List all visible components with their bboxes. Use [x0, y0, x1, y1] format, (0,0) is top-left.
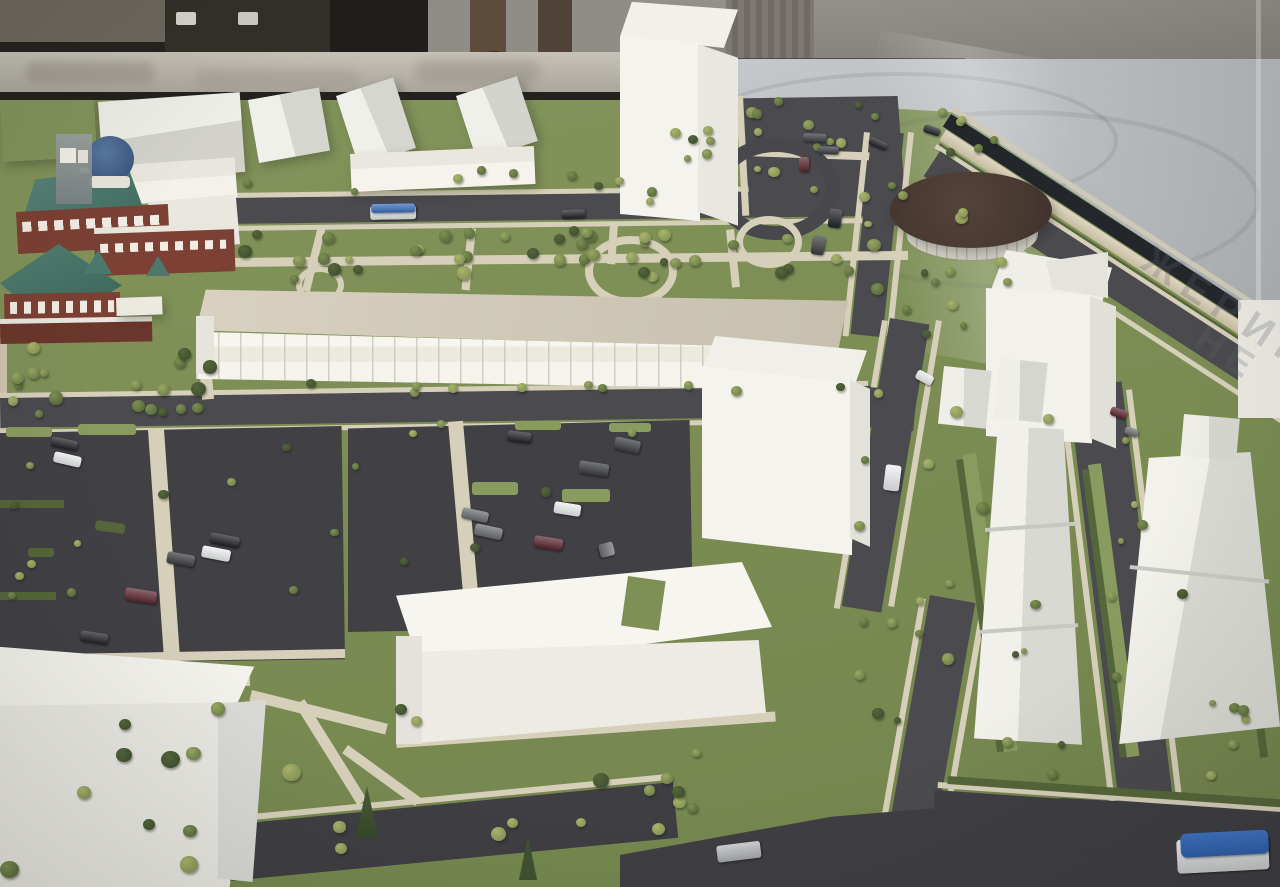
church-clock-face-2: [78, 150, 88, 163]
tree: [647, 187, 658, 197]
tree: [77, 786, 91, 799]
slab-tall-face: [702, 366, 852, 555]
tree: [782, 234, 792, 244]
tree: [132, 400, 145, 412]
tree: [593, 773, 609, 788]
tree: [491, 827, 506, 841]
lwing-end: [396, 636, 422, 744]
tree: [10, 501, 19, 509]
case-light-1: [176, 12, 196, 25]
tower-right-side: [1090, 296, 1116, 449]
car-lot-ne-1: [803, 133, 827, 143]
tree: [859, 192, 870, 202]
case-light-2: [238, 12, 258, 25]
tree: [584, 381, 593, 389]
tree: [859, 617, 869, 626]
tree: [157, 384, 170, 396]
tree: [670, 258, 681, 268]
tree: [192, 403, 203, 414]
tree: [1206, 771, 1216, 780]
tree: [638, 267, 650, 278]
tree: [731, 386, 742, 396]
tree: [352, 463, 359, 470]
car-lot-ne-2: [818, 146, 839, 155]
tree: [318, 253, 330, 264]
tree: [49, 391, 64, 405]
lot-island-5: [515, 421, 561, 430]
tree: [1030, 600, 1041, 610]
tree: [921, 269, 929, 276]
tree: [1122, 437, 1129, 444]
tree: [689, 255, 701, 266]
church-clock-face-1: [60, 148, 76, 163]
tree: [1058, 741, 1065, 747]
tree: [687, 803, 698, 813]
tree: [541, 487, 551, 496]
building-gable-nw-3: [248, 87, 330, 163]
tree: [306, 379, 316, 389]
tree: [1137, 520, 1148, 530]
tree: [673, 797, 685, 808]
tree: [931, 278, 939, 285]
tree: [826, 138, 834, 145]
tree: [290, 275, 298, 283]
tree: [27, 342, 40, 354]
car-top-road: [561, 209, 585, 219]
tree: [628, 429, 637, 437]
tree: [976, 502, 989, 514]
tree: [922, 330, 931, 338]
tree: [527, 248, 539, 259]
tree: [768, 167, 780, 178]
tree: [684, 381, 693, 390]
tree: [74, 540, 81, 547]
tree: [947, 300, 958, 310]
tree: [158, 490, 169, 500]
tree: [990, 136, 998, 143]
bus-top-roof: [371, 203, 415, 213]
car-main-road-2: [810, 235, 826, 256]
tree: [598, 384, 607, 392]
lot-island-2: [6, 427, 52, 437]
tree: [395, 704, 407, 715]
tree: [131, 380, 141, 390]
church-clock-tower: [56, 134, 92, 204]
tree: [1107, 592, 1117, 601]
tree: [178, 348, 191, 360]
tree: [803, 120, 814, 130]
strip-smudge-2: [195, 70, 360, 88]
tree: [1003, 278, 1012, 286]
tree: [410, 246, 421, 256]
tree: [945, 580, 953, 588]
car-lot-ne-3: [799, 157, 809, 172]
tree: [143, 819, 155, 830]
tree: [872, 708, 883, 719]
tree: [457, 266, 472, 280]
church-front-arches: [10, 300, 114, 314]
tree: [831, 254, 842, 264]
tree: [1112, 672, 1122, 681]
tree: [864, 221, 871, 228]
tree: [867, 239, 880, 251]
tree: [470, 543, 480, 552]
tree: [35, 410, 43, 418]
tree: [186, 747, 201, 761]
tree: [874, 389, 883, 398]
tree: [942, 653, 954, 664]
tree: [945, 267, 955, 276]
tree: [752, 109, 763, 119]
lot-island-4: [562, 489, 610, 502]
tree: [333, 821, 345, 832]
tree: [728, 240, 739, 250]
car-main-road-1: [827, 208, 843, 229]
tree: [8, 592, 16, 599]
tree: [661, 773, 672, 783]
tree: [180, 856, 198, 872]
tree: [211, 702, 226, 716]
tree: [176, 404, 187, 414]
house-gable-tip: [1180, 414, 1239, 461]
tree: [448, 384, 458, 393]
park-ring-2: [736, 216, 802, 268]
tree: [946, 148, 955, 156]
tree: [116, 748, 132, 763]
tree: [1177, 589, 1188, 599]
tree: [15, 572, 23, 580]
tree: [293, 255, 306, 267]
tree: [1021, 648, 1028, 654]
tree: [282, 764, 300, 781]
tree: [836, 383, 844, 391]
tree: [554, 234, 565, 245]
tree: [464, 228, 475, 238]
tree: [958, 116, 966, 123]
case-floor: [0, 0, 165, 42]
tree: [0, 861, 18, 878]
tree: [646, 198, 653, 205]
lwing-notch-grass: [621, 576, 666, 631]
strip-smudge-1: [25, 62, 155, 84]
tree: [203, 360, 218, 373]
tree: [439, 230, 452, 242]
house-end-2: [994, 358, 1048, 423]
tree: [1228, 740, 1238, 749]
church-entry-canopy: [116, 296, 163, 316]
tree: [191, 382, 206, 396]
tree: [8, 396, 18, 405]
tree: [412, 382, 421, 390]
tree: [243, 179, 252, 187]
tree: [950, 406, 963, 418]
tower-face-left: [620, 36, 700, 221]
lot-island-3: [472, 482, 518, 495]
tree: [644, 785, 656, 796]
tower-face-right: [698, 44, 738, 226]
tree: [1238, 705, 1249, 715]
tree: [855, 102, 862, 108]
van-main-road: [883, 464, 902, 492]
tree: [702, 149, 712, 158]
building-low-slab: [350, 146, 535, 192]
lot-island-1: [78, 424, 136, 435]
tree: [1012, 651, 1019, 658]
house-end-1: [938, 366, 992, 429]
tree: [282, 444, 290, 452]
round-pavilion-roof: [890, 172, 1052, 248]
tree: [238, 245, 251, 257]
case-dark-panel: [330, 0, 438, 58]
tree: [335, 843, 347, 854]
tree: [915, 630, 923, 637]
tree: [1043, 414, 1054, 424]
glass-seam: [1256, 0, 1261, 348]
strip-smudge-3: [415, 60, 540, 84]
church-dome-base: [90, 176, 130, 188]
tree: [684, 155, 691, 162]
tree: [660, 258, 669, 266]
tree: [958, 208, 968, 217]
tree: [400, 558, 408, 565]
tree: [330, 529, 339, 537]
tree: [774, 97, 783, 106]
lot-hedge-2: [28, 548, 54, 557]
tree: [409, 430, 417, 437]
tree: [871, 283, 884, 295]
tree: [960, 322, 967, 329]
photo-architectural-model: ЖЕРИННЕ: [0, 0, 1280, 887]
park-ring-1: [585, 236, 677, 306]
tree: [1118, 538, 1124, 544]
tree: [706, 137, 715, 145]
tree: [576, 239, 587, 250]
tree: [411, 716, 422, 726]
bus-br-roof: [1180, 829, 1269, 858]
tree: [1002, 737, 1013, 747]
tree: [1209, 700, 1216, 706]
tree: [703, 126, 712, 135]
tree: [11, 372, 24, 384]
tree: [672, 786, 685, 798]
tree: [1241, 714, 1250, 723]
